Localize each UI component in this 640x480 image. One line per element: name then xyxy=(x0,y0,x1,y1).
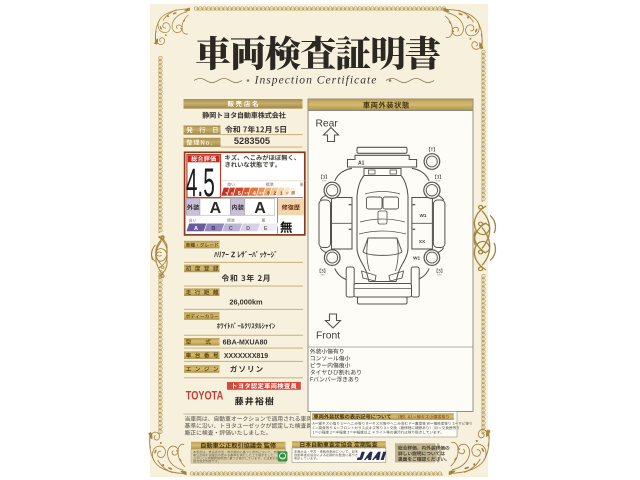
svg-text:R: R xyxy=(286,191,288,195)
svg-text:mm: mm xyxy=(320,274,325,277)
svg-text:A: A xyxy=(254,200,266,217)
svg-text:26,000km: 26,000km xyxy=(229,297,263,306)
svg-text:S: S xyxy=(225,191,227,195)
svg-text:E: E xyxy=(264,226,268,232)
svg-text:mm: mm xyxy=(322,180,327,183)
svg-text:4.5: 4.5 xyxy=(245,191,250,195)
svg-text:A1: A1 xyxy=(358,160,365,166)
svg-text:D: D xyxy=(246,226,250,232)
svg-text:B: B xyxy=(211,226,215,232)
svg-text:mm: mm xyxy=(436,180,441,183)
svg-text:6BA-MXUA80: 6BA-MXUA80 xyxy=(223,340,268,347)
svg-text:A: A xyxy=(194,226,198,232)
svg-text:TOYOTA: TOYOTA xyxy=(186,389,224,402)
svg-text:Rear: Rear xyxy=(316,119,339,130)
svg-text:XX: XX xyxy=(419,239,426,244)
svg-text:1: 1 xyxy=(280,191,283,196)
svg-text:5283505: 5283505 xyxy=(234,136,270,146)
svg-text:3: 3 xyxy=(267,191,270,196)
svg-text:C: C xyxy=(229,226,233,232)
svg-text:W1: W1 xyxy=(413,255,420,260)
svg-text:mm: mm xyxy=(437,274,442,277)
svg-text:Front: Front xyxy=(316,331,340,342)
svg-text:W1: W1 xyxy=(419,213,426,218)
svg-text:A: A xyxy=(210,200,222,217)
svg-text:XXXXXXX819: XXXXXXX819 xyxy=(224,353,268,360)
svg-text:Inspection Certificate: Inspection Certificate xyxy=(254,74,378,87)
svg-text:2: 2 xyxy=(274,191,277,196)
svg-text:3.5: 3.5 xyxy=(260,191,265,195)
svg-text:5: 5 xyxy=(238,191,241,197)
